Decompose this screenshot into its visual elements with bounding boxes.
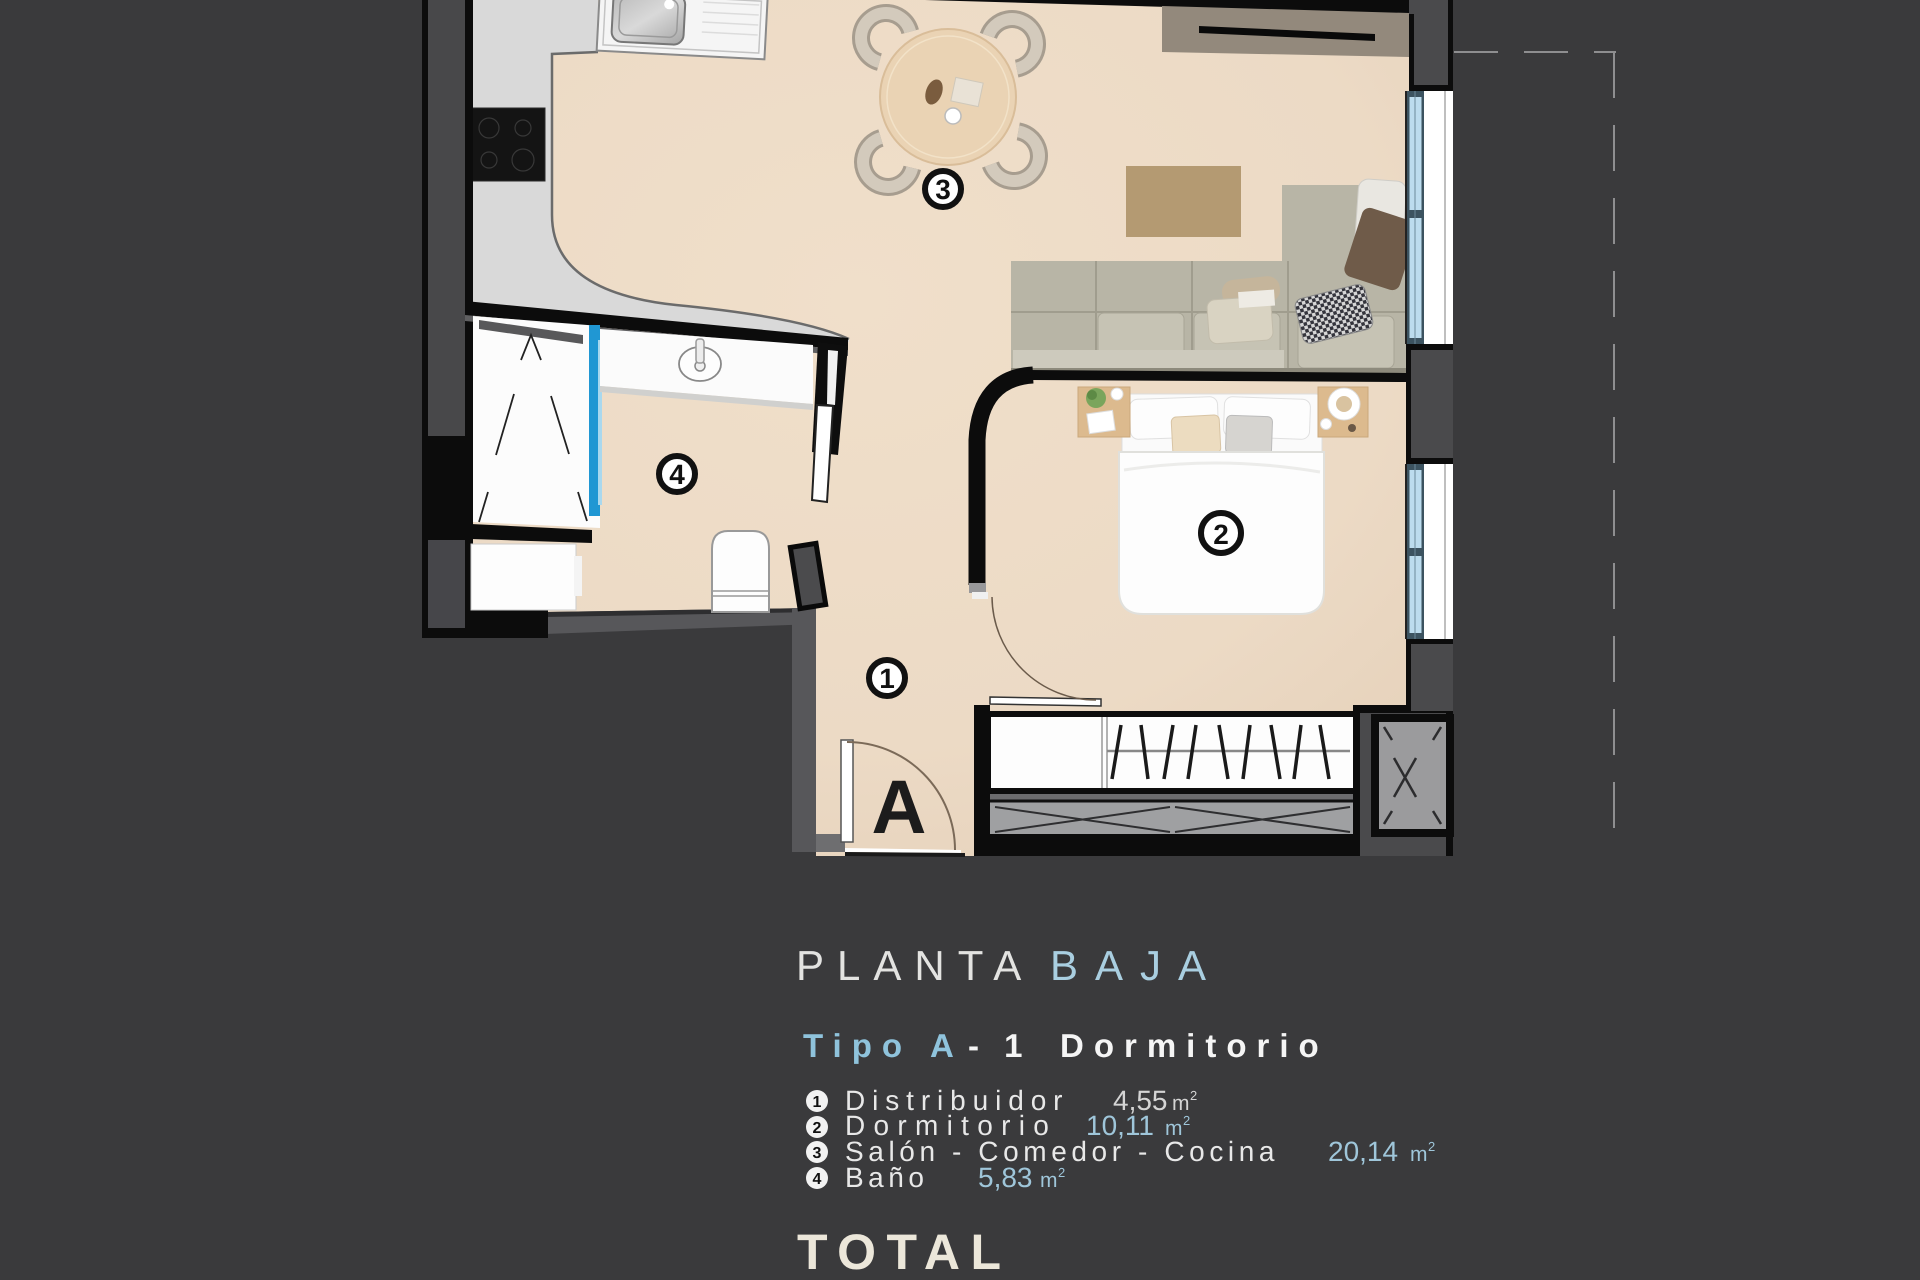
svg-text:PLANTA: PLANTA — [796, 942, 1034, 989]
svg-text:20,14: 20,14 — [1328, 1136, 1398, 1167]
svg-text:BAJA: BAJA — [1050, 942, 1223, 989]
svg-text:2: 2 — [1058, 1165, 1069, 1180]
svg-text:2: 2 — [1183, 1113, 1194, 1128]
svg-text:5,83: 5,83 — [978, 1162, 1033, 1193]
svg-text:4: 4 — [669, 459, 685, 490]
svg-text:3: 3 — [813, 1145, 822, 1162]
svg-text:Tipo A: Tipo A — [803, 1027, 964, 1064]
svg-text:Baño: Baño — [845, 1162, 928, 1193]
svg-text:Dormitorio: Dormitorio — [1060, 1027, 1329, 1064]
svg-text:2: 2 — [1190, 1088, 1201, 1103]
svg-text:2: 2 — [1213, 519, 1229, 550]
svg-text:2: 2 — [813, 1120, 822, 1137]
svg-text:1: 1 — [879, 663, 895, 694]
svg-text:TOTAL: TOTAL — [797, 1224, 1012, 1280]
svg-text:4: 4 — [813, 1171, 822, 1188]
svg-text:3: 3 — [935, 174, 951, 205]
svg-text:- 1: - 1 — [968, 1027, 1031, 1064]
svg-text:1: 1 — [813, 1094, 822, 1111]
svg-text:2: 2 — [1428, 1139, 1439, 1154]
svg-text:A: A — [872, 765, 927, 850]
